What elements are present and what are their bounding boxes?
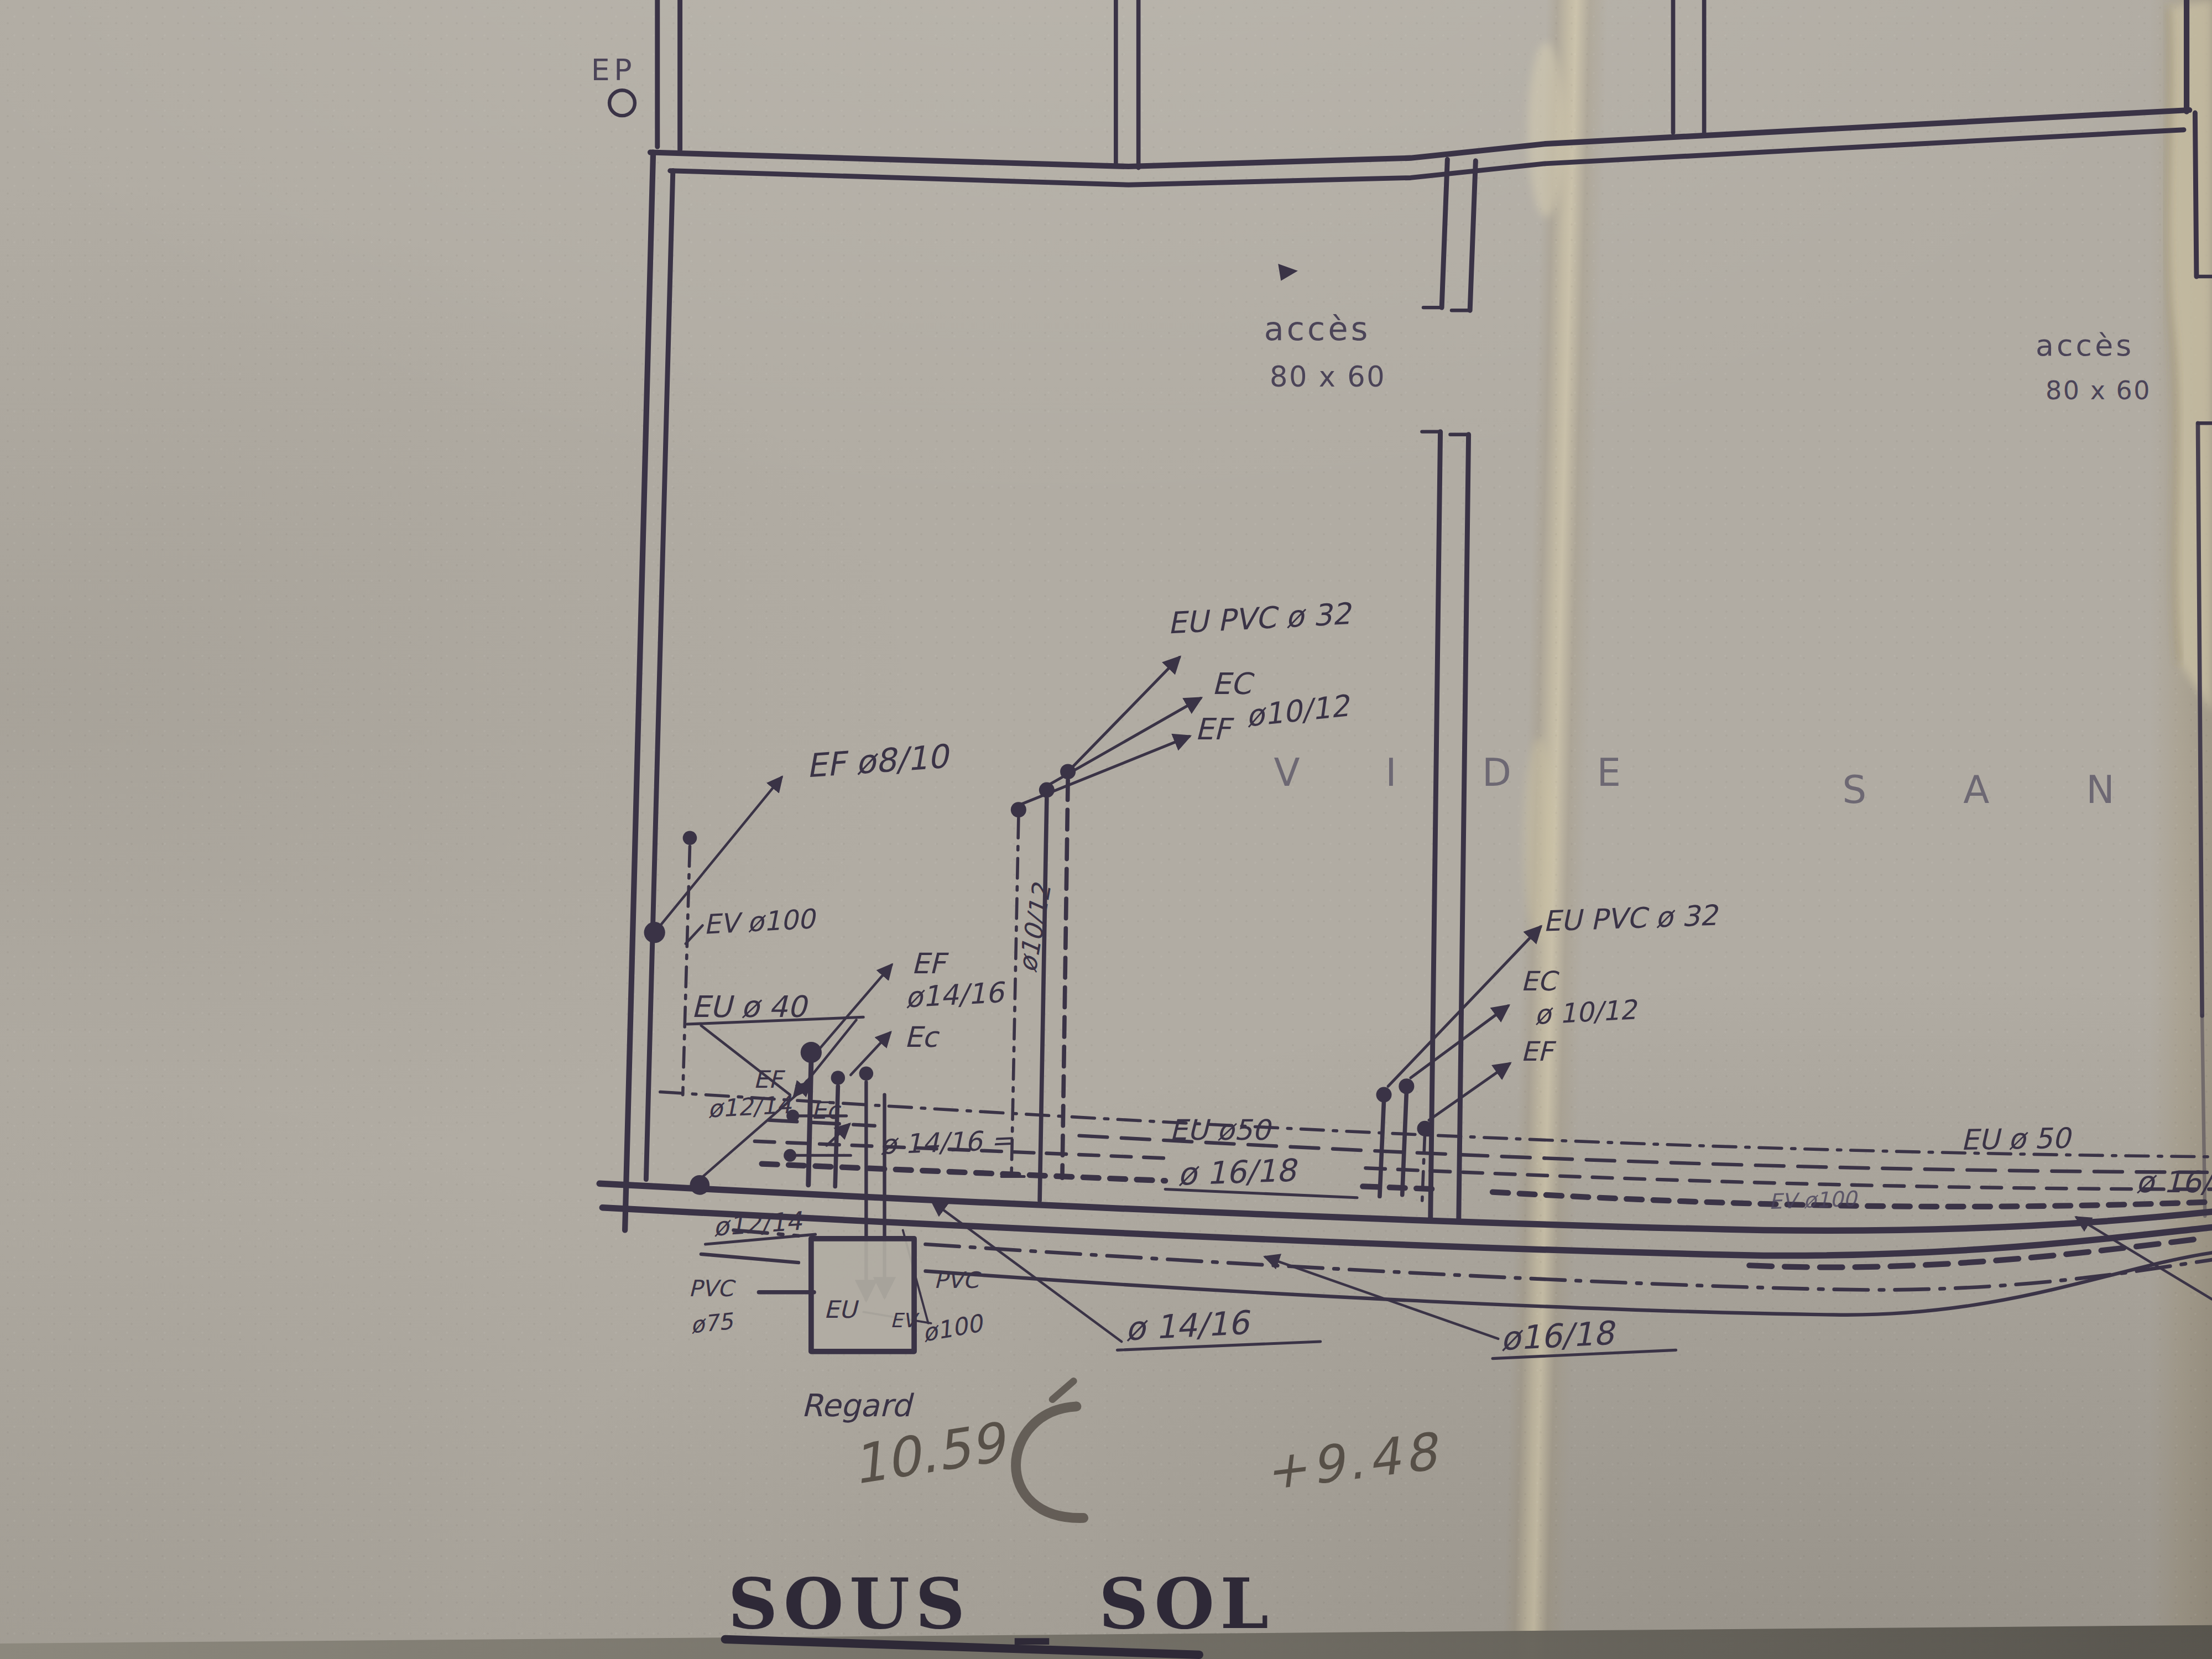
leader-ef-mid [814,965,891,1055]
label-ef-left-top: EF [1195,712,1235,747]
label-pvc-right: PVC [934,1267,982,1293]
label-ec-mid: Ec [904,1021,940,1053]
party-wall-a-lower [1431,432,1441,1219]
label-dia-75: ø75 [689,1308,735,1339]
dot-ev100-main [644,922,665,943]
label-ef-8-10: EF ø8/10 [805,737,952,785]
pipe-run-below-solid-a [701,1254,799,1262]
label-dia-12-14-bottom: ø12/14 [712,1206,804,1241]
photographed-blueprint: SOUS _ SOL [0,0,2212,1659]
label-dia-10-12-top: ø10/12 [1244,688,1353,734]
dot-trio-b [1039,782,1055,798]
dot-eu40 [801,1042,822,1063]
labels-layer: EPaccès80 x 60accès80 x 60V I D ES A N I… [591,53,2212,1644]
dot-roomB-c [1417,1121,1433,1136]
label-ef-mid: EF [911,947,949,980]
label-ep: EP [591,53,636,87]
label-dia-10-12-right: ø 10/12 [1533,994,1639,1030]
label-dia-12-14-small: ø12/14 [707,1091,793,1123]
label-acces-left-size: 80 x 60 [1270,361,1386,393]
label-dia-16-18-callout: ø16/18 [1499,1314,1617,1358]
label-eu-regard: EU [824,1296,859,1323]
label-ev-100-left: EV ø100 [703,903,818,940]
riser-trio-dashdot [1011,818,1019,1174]
dot-ev100-top [683,831,697,846]
label-eu-50-mid: EU ø50 [1170,1114,1272,1146]
leader-trio-eu32 [1071,658,1179,769]
pencil-tick [1052,1381,1073,1399]
dot-trio-c [1060,764,1076,779]
label-acces-right-size: 80 x 60 [2046,375,2151,405]
label-dia-10-12-riser: ø10/12 [1012,880,1057,974]
dot-roomB-a [1376,1087,1392,1103]
leader-callout-16-18 [1265,1257,1498,1339]
wall-top-outer [650,110,2189,166]
party-wall-b-upper [1470,161,1475,310]
label-dia-14-16-mid: ø14/16 [904,976,1006,1014]
riser-roomB-1 [1380,1100,1384,1196]
pencil-bracket-scribble [1016,1406,1083,1518]
riser-trio-solid [1040,799,1047,1201]
label-eu-40: EU ø 40 [691,989,808,1024]
party-wall-a-upper [1442,159,1447,307]
riser-roomB-2 [1402,1092,1407,1194]
photo-artifacts [0,0,2212,1659]
leader-roomB-ef [1429,1063,1509,1120]
party-wall-b-lower [1459,435,1469,1222]
pencil-marks [1016,1381,1083,1518]
label-ef-small: EF [753,1066,785,1093]
label-dia-14-16-run: ø 14/16 = [879,1124,1014,1160]
dot-wall-12-14 [690,1175,709,1195]
label-dia-100: ø100 [920,1309,987,1347]
label-ec-small: Ec [811,1097,841,1124]
label-sanitaire: S A N I [1843,768,2212,812]
fold-blotch-top [1528,43,1564,217]
label-pvc-left: PVC [688,1275,737,1302]
dot-cluster2-b [859,1067,874,1081]
label-ev-regard: EV [890,1310,920,1332]
dot-small-2 [784,1149,796,1162]
dot-roomB-b [1399,1078,1414,1094]
dot-trio-a [1011,802,1026,817]
dot-cluster2-a [831,1071,846,1085]
label-acces-left: accès [1264,310,1371,348]
label-eu-pvc-32-right: EU PVC ø 32 [1542,899,1720,938]
label-ec-right: EC [1521,966,1560,997]
wall-right-upper [2195,113,2197,276]
label-regard: Regard [801,1387,915,1423]
label-level-9-48: +9.48 [1261,1422,1443,1502]
label-vide: V I D E [1274,750,1658,795]
pipe-run-eu50-b [1365,1168,2212,1189]
ep-downpipe-circle [609,90,635,116]
label-dia-16-18-mid: ø 16/18 [1177,1152,1298,1192]
label-acces-right: accès [2036,328,2134,363]
pipe-run-16-18-a [762,1164,1166,1181]
label-eu-pvc-32-left: EU PVC ø 32 [1167,596,1353,640]
riser-trio-dashed [1062,780,1068,1178]
riser-roomB-3 [1422,1134,1425,1205]
label-eu-50-right: EU ø 50 [1960,1122,2073,1157]
label-ef-right: EF [1521,1036,1557,1067]
label-dia-16-18-right-clipped: ø 16/18 [2136,1165,2212,1199]
basement-plumbing-plan: SOUS _ SOL [0,0,2212,1659]
title-sous-sol: SOUS _ SOL [728,1563,1274,1645]
label-dia-14-16-callout: ø 14/16 [1124,1304,1252,1348]
label-ec-left-top: EC [1212,666,1255,701]
riser-ev100 [683,847,690,1095]
label-ev-100-right: EV ø100 [1768,1186,1859,1214]
acces-arrow-icon [1278,264,1298,281]
